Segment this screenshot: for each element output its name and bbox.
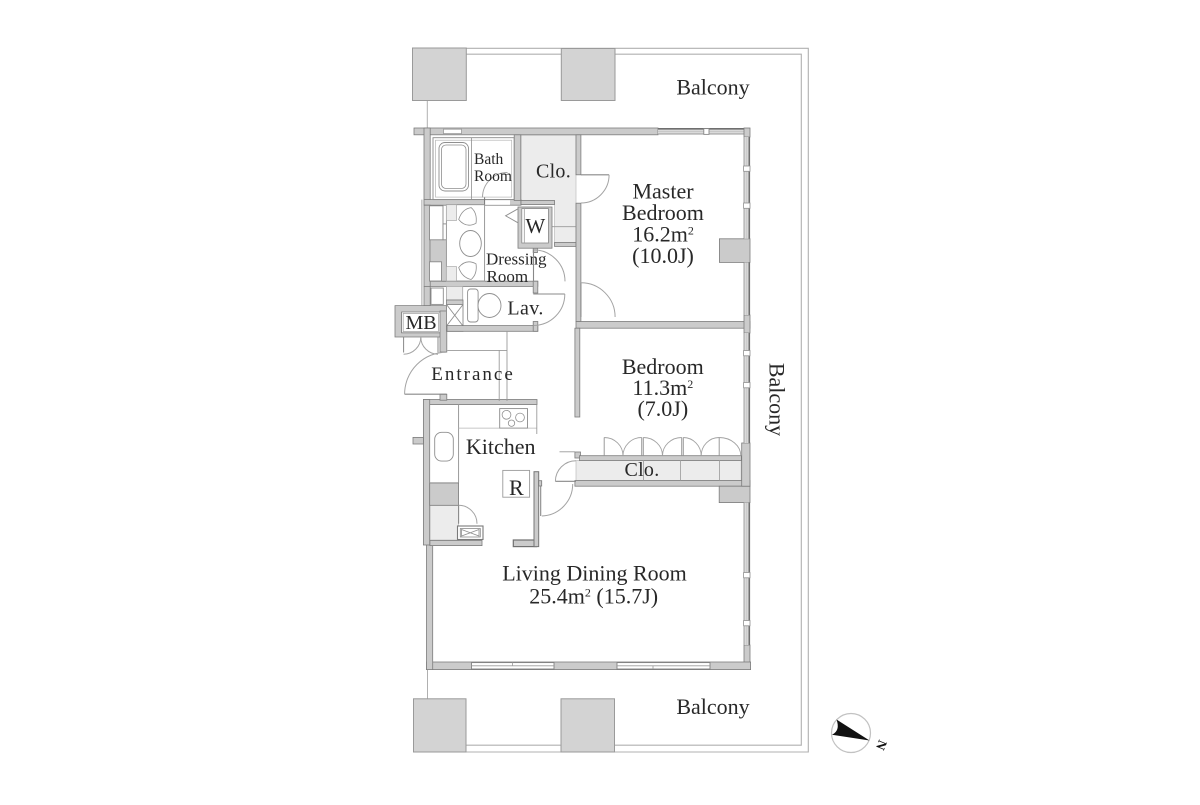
svg-text:Room: Room [474, 168, 512, 185]
svg-text:MB: MB [405, 312, 436, 334]
svg-text:Room: Room [487, 267, 529, 286]
svg-text:Bath: Bath [474, 151, 504, 168]
svg-text:Lav.: Lav. [507, 298, 543, 320]
svg-text:Clo.: Clo. [624, 459, 659, 481]
svg-text:Kitchen: Kitchen [466, 434, 536, 459]
svg-text:W: W [525, 214, 545, 238]
svg-text:Clo.: Clo. [536, 160, 571, 182]
svg-text:Balcony: Balcony [765, 363, 790, 436]
svg-text:25.4m2 (15.7J): 25.4m2 (15.7J) [529, 584, 658, 609]
svg-text:Dressing: Dressing [486, 249, 547, 268]
svg-text:(7.0J): (7.0J) [637, 396, 688, 421]
svg-text:Balcony: Balcony [676, 75, 749, 100]
svg-text:Balcony: Balcony [676, 694, 749, 719]
svg-text:Living Dining Room: Living Dining Room [502, 560, 687, 585]
svg-text:Entrance: Entrance [431, 364, 515, 385]
svg-text:(10.0J): (10.0J) [632, 243, 694, 268]
svg-text:R: R [509, 475, 524, 500]
